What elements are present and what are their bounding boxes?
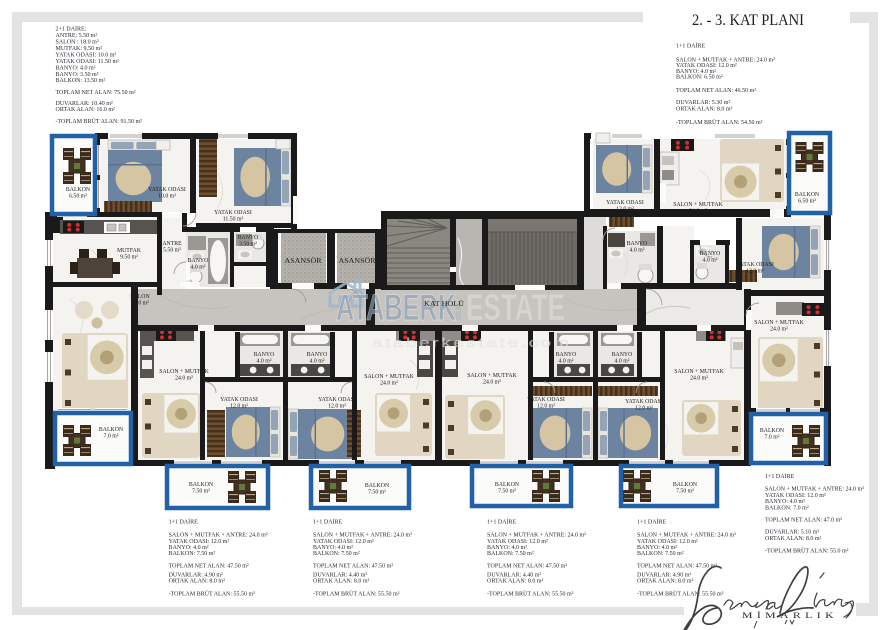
- svg-text:1+1 DAİRE: 1+1 DAİRE: [637, 518, 667, 525]
- svg-text:BALKON: BALKON: [365, 483, 390, 489]
- svg-text:1+1 DAİRE: 1+1 DAİRE: [765, 473, 795, 480]
- svg-text:BANYO: BANYO: [254, 352, 275, 358]
- svg-text:7.0 m²: 7.0 m²: [104, 434, 119, 440]
- svg-text:1+1 DAİRE: 1+1 DAİRE: [676, 43, 706, 50]
- svg-text:ataberkestate.com: ataberkestate.com: [372, 335, 572, 350]
- svg-text:KAT HOLÜ: KAT HOLÜ: [424, 301, 464, 308]
- svg-text:24.0 m²: 24.0 m²: [175, 376, 193, 382]
- svg-text:SALON + MUTFAK + ANTRE: 24.0 m: SALON + MUTFAK + ANTRE: 24.0 m²: [637, 533, 736, 539]
- svg-text:DUVARLAR: 4.40 m²: DUVARLAR: 4.40 m²: [487, 573, 541, 579]
- svg-text:YATAK ODASI: 10.0 m²: YATAK ODASI: 10.0 m²: [56, 53, 117, 59]
- svg-text:24.0 m²: 24.0 m²: [380, 381, 398, 387]
- svg-text:SALON : 18.0 m²: SALON : 18.0 m²: [56, 40, 99, 46]
- svg-text:TOPLAM NET ALAN: 47.50 m²: TOPLAM NET ALAN: 47.50 m²: [169, 564, 249, 570]
- svg-text:-TOPLAM BRÜT ALAN: 55.50 m²: -TOPLAM BRÜT ALAN: 55.50 m²: [487, 590, 574, 597]
- svg-text:BANYO: BANYO: [307, 352, 328, 358]
- svg-text:MUTFAK: 9.50 m²: MUTFAK: 9.50 m²: [56, 46, 103, 52]
- svg-text:BANYO: BANYO: [238, 235, 259, 241]
- svg-text:24.0 m²: 24.0 m²: [770, 327, 788, 333]
- svg-text:-TOPLAM BRÜT ALAN: 91.50 m²: -TOPLAM BRÜT ALAN: 91.50 m²: [56, 118, 143, 125]
- svg-text:ORTAK ALAN: 8.0 m²: ORTAK ALAN: 8.0 m²: [487, 579, 543, 585]
- svg-text:5.50 m²: 5.50 m²: [163, 248, 181, 254]
- svg-text:12.0 m²: 12.0 m²: [616, 207, 634, 213]
- svg-text:24.0 m²: 24.0 m²: [483, 380, 501, 386]
- svg-text:YATAK ODASI: YATAK ODASI: [148, 187, 186, 193]
- svg-text:4.0 m²: 4.0 m²: [310, 359, 325, 365]
- svg-text:4.0 m²: 4.0 m²: [257, 359, 272, 365]
- svg-text:ORTAK ALAN: 8.0 m²: ORTAK ALAN: 8.0 m²: [637, 579, 693, 585]
- svg-text:BANYO: BANYO: [700, 251, 721, 257]
- svg-text:BALKON: 7.50 m²: BALKON: 7.50 m²: [313, 551, 360, 557]
- svg-text:4.0 m²: 4.0 m²: [703, 258, 718, 264]
- svg-text:BALKON: 6.50 m²: BALKON: 6.50 m²: [676, 75, 723, 81]
- svg-text:YATAK ODASI: 11.50 m²: YATAK ODASI: 11.50 m²: [56, 59, 120, 65]
- svg-text:SALON: SALON: [130, 294, 150, 300]
- svg-text:BALKON: 7.50 m²: BALKON: 7.50 m²: [169, 551, 216, 557]
- svg-text:BANYO: 4.0 m²: BANYO: 4.0 m²: [313, 545, 353, 551]
- svg-text:BALKON: BALKON: [760, 428, 785, 434]
- svg-text:2. - 3. KAT PLANI: 2. - 3. KAT PLANI: [692, 12, 804, 29]
- svg-text:6.50 m²: 6.50 m²: [69, 194, 87, 200]
- svg-text:SALON + MUTFAK: SALON + MUTFAK: [159, 369, 209, 375]
- svg-text:SALON + MUTFAK: SALON + MUTFAK: [674, 369, 724, 375]
- svg-text:DUVARLAR: 5.30 m²: DUVARLAR: 5.30 m²: [676, 100, 730, 106]
- svg-text:BALKON: 13.50 m²: BALKON: 13.50 m²: [56, 78, 106, 84]
- svg-text:12.0 m²: 12.0 m²: [746, 269, 764, 275]
- svg-text:ORTAK ALAN: 8.0 m²: ORTAK ALAN: 8.0 m²: [765, 536, 821, 542]
- svg-text:6.50 m²: 6.50 m²: [798, 199, 816, 205]
- svg-text:SALON + MUTFAK: SALON + MUTFAK: [364, 374, 414, 380]
- svg-text:1+1 DAİRE: 1+1 DAİRE: [313, 518, 343, 525]
- svg-text:BALKON: BALKON: [99, 427, 124, 433]
- svg-text:DUVARLAR: 4.90 m²: DUVARLAR: 4.90 m²: [637, 573, 691, 579]
- svg-text:MUTFAK: MUTFAK: [117, 248, 142, 254]
- svg-text:ASANSÖR: ASANSÖR: [339, 256, 376, 265]
- svg-text:-TOPLAM BRÜT ALAN: 55.50 m²: -TOPLAM BRÜT ALAN: 55.50 m²: [169, 590, 256, 597]
- svg-text:BANYO: 4.0 m²: BANYO: 4.0 m²: [637, 545, 677, 551]
- svg-text:7.50 m²: 7.50 m²: [676, 489, 694, 495]
- svg-text:SALON + MUTFAK + ANTRE: 24.0 m: SALON + MUTFAK + ANTRE: 24.0 m²: [313, 533, 412, 539]
- svg-text:BALKON: BALKON: [495, 482, 520, 488]
- svg-text:12.0 m²: 12.0 m²: [230, 404, 248, 410]
- svg-text:ORTAK ALAN: 8.0 m²: ORTAK ALAN: 8.0 m²: [169, 579, 225, 585]
- svg-text:BANYO: 4.0 m²: BANYO: 4.0 m²: [765, 499, 805, 505]
- svg-text:-TOPLAM BRÜT ALAN: 55.50 m²: -TOPLAM BRÜT ALAN: 55.50 m²: [637, 590, 724, 597]
- svg-text:7.0 m²: 7.0 m²: [765, 435, 780, 441]
- svg-text:BANYO: BANYO: [188, 258, 209, 264]
- svg-text:4.0 m²: 4.0 m²: [630, 248, 645, 254]
- svg-text:BANYO: 4.0 m²: BANYO: 4.0 m²: [169, 545, 209, 551]
- svg-text:3.50 m²: 3.50 m²: [239, 242, 257, 248]
- svg-text:BALKON: 7.50 m²: BALKON: 7.50 m²: [487, 551, 534, 557]
- svg-text:SALON + MUTFAK: SALON + MUTFAK: [673, 202, 723, 208]
- svg-text:1+1 DAİRE: 1+1 DAİRE: [169, 518, 199, 525]
- svg-text:YATAK ODASI: YATAK ODASI: [214, 210, 252, 216]
- svg-text:ORTAK ALAN: 16.0 m²: ORTAK ALAN: 16.0 m²: [56, 107, 115, 113]
- svg-text:YATAK ODASI: YATAK ODASI: [527, 397, 565, 403]
- svg-text:BANYO: BANYO: [627, 241, 648, 247]
- svg-text:BANYO: BANYO: [612, 352, 633, 358]
- svg-text:ASANSÖR: ASANSÖR: [285, 256, 322, 265]
- svg-text:7.50 m²: 7.50 m²: [498, 489, 516, 495]
- svg-text:12.0 m²: 12.0 m²: [635, 406, 653, 412]
- svg-text:MİMARLIK: MİMARLIK: [742, 611, 838, 620]
- svg-text:TOPLAM NET ALAN: 47.50 m²: TOPLAM NET ALAN: 47.50 m²: [487, 564, 567, 570]
- svg-text:12.0 m²: 12.0 m²: [328, 404, 346, 410]
- svg-text:ORTAK ALAN: 8.0 m²: ORTAK ALAN: 8.0 m²: [676, 107, 732, 113]
- svg-text:SALON + MUTFAK: SALON + MUTFAK: [467, 373, 517, 379]
- svg-text:BALKON: BALKON: [795, 192, 820, 198]
- svg-text:DUVARLAR: 4.40 m²: DUVARLAR: 4.40 m²: [313, 573, 367, 579]
- svg-text:BALKON: BALKON: [189, 482, 214, 488]
- svg-text:TOPLAM NET ALAN: 47.0 m²: TOPLAM NET ALAN: 47.0 m²: [765, 518, 842, 524]
- svg-text:1+1 DAİRE: 1+1 DAİRE: [487, 518, 517, 525]
- svg-text:YATAK ODASI: YATAK ODASI: [736, 262, 774, 268]
- svg-text:SALON + MUTFAK + ANTRE: 24.0 m: SALON + MUTFAK + ANTRE: 24.0 m²: [169, 533, 268, 539]
- svg-text:ANTRE: ANTRE: [162, 241, 182, 247]
- svg-text:SALON + MUTFAK + ANTRE: 24.0 m: SALON + MUTFAK + ANTRE: 24.0 m²: [765, 487, 864, 493]
- svg-text:7.50 m²: 7.50 m²: [192, 489, 210, 495]
- svg-text:12.0 m²: 12.0 m²: [537, 404, 555, 410]
- svg-text:4.0 m²: 4.0 m²: [559, 359, 574, 365]
- svg-text:18.0 m²: 18.0 m²: [131, 301, 149, 307]
- svg-text:BALKON: 7.50 m²: BALKON: 7.50 m²: [637, 551, 684, 557]
- svg-text:BANYO: 4.0 m²: BANYO: 4.0 m²: [56, 66, 96, 72]
- svg-text:YATAK ODASI: YATAK ODASI: [220, 397, 258, 403]
- svg-text:SALON + MUTFAK: SALON + MUTFAK: [754, 320, 804, 326]
- svg-text:7.50 m²: 7.50 m²: [368, 490, 386, 496]
- svg-text:BALKON: BALKON: [673, 482, 698, 488]
- svg-text:ORTAK ALAN: 8.0 m²: ORTAK ALAN: 8.0 m²: [313, 579, 369, 585]
- svg-text:2+1 DAİRE:: 2+1 DAİRE:: [56, 26, 87, 33]
- svg-text:TOPLAM NET ALAN: 46.50 m²: TOPLAM NET ALAN: 46.50 m²: [676, 88, 756, 94]
- svg-text:TOPLAM NET ALAN: 75.50 m²: TOPLAM NET ALAN: 75.50 m²: [56, 90, 136, 96]
- svg-text:24.0 m²: 24.0 m²: [689, 209, 707, 215]
- svg-text:9.50 m²: 9.50 m²: [120, 255, 138, 261]
- svg-text:YATAK ODASI: YATAK ODASI: [606, 200, 644, 206]
- svg-text:BANYO: BANYO: [556, 352, 577, 358]
- svg-text:YATAK ODASI: YATAK ODASI: [318, 397, 356, 403]
- svg-text:BALKON: 7.0 m²: BALKON: 7.0 m²: [765, 505, 809, 511]
- svg-text:TOPLAM NET ALAN: 47.50 m²: TOPLAM NET ALAN: 47.50 m²: [637, 564, 717, 570]
- svg-text:DUVARLAR: 5.10 m²: DUVARLAR: 5.10 m²: [765, 530, 819, 536]
- svg-text:BANYO: 4.0 m²: BANYO: 4.0 m²: [487, 545, 527, 551]
- svg-text:10.0 m²: 10.0 m²: [158, 194, 176, 200]
- svg-text:24.0 m²: 24.0 m²: [690, 376, 708, 382]
- svg-text:ESTATE: ESTATE: [466, 287, 565, 328]
- svg-text:4.0 m²: 4.0 m²: [615, 359, 630, 365]
- svg-text:DUVARLAR: 4.90 m²: DUVARLAR: 4.90 m²: [169, 573, 223, 579]
- svg-text:4.0 m²: 4.0 m²: [191, 265, 206, 271]
- svg-text:BALKON: BALKON: [66, 187, 91, 193]
- svg-text:ANTRE: 5.50 m²: ANTRE: 5.50 m²: [56, 33, 98, 39]
- svg-text:-TOPLAM BRÜT ALAN: 54.50 m²: -TOPLAM BRÜT ALAN: 54.50 m²: [676, 119, 763, 126]
- svg-text:-TOPLAM BRÜT ALAN: 55.50 m²: -TOPLAM BRÜT ALAN: 55.50 m²: [313, 590, 400, 597]
- svg-text:11.50 m²: 11.50 m²: [223, 217, 244, 223]
- svg-text:SALON + MUTFAK + ANTRE: 24.0 m: SALON + MUTFAK + ANTRE: 24.0 m²: [487, 533, 586, 539]
- svg-text:TOPLAM NET ALAN: 47.50 m²: TOPLAM NET ALAN: 47.50 m²: [313, 564, 393, 570]
- svg-text:YATAK ODASI: 12.0 m²: YATAK ODASI: 12.0 m²: [765, 493, 826, 499]
- svg-text:YATAK ODASI: YATAK ODASI: [625, 399, 663, 405]
- svg-text:-TOPLAM BRÜT ALAN: 55.0 m²: -TOPLAM BRÜT ALAN: 55.0 m²: [765, 548, 849, 555]
